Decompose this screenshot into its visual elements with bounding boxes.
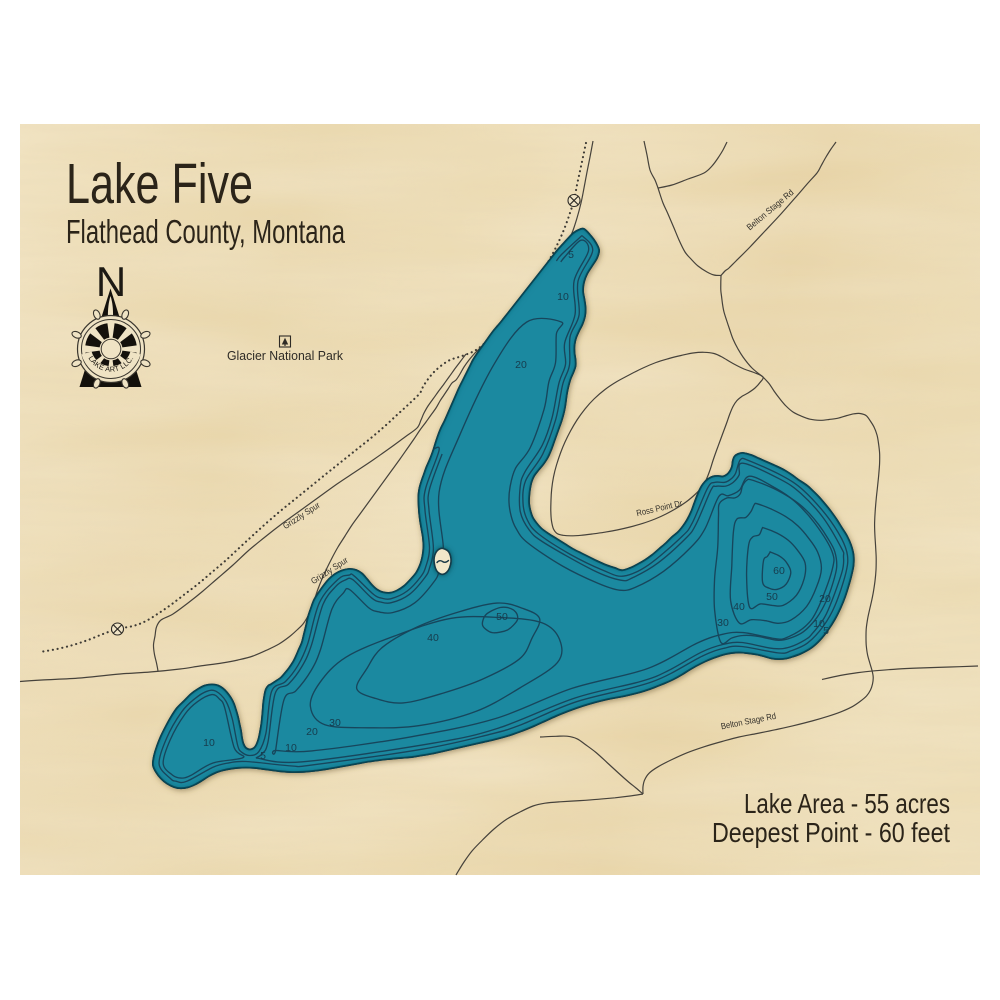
svg-text:Lake Area - 55 acres: Lake Area - 55 acres bbox=[744, 788, 950, 819]
svg-text:30: 30 bbox=[329, 717, 341, 729]
svg-text:5: 5 bbox=[260, 750, 266, 762]
svg-text:20: 20 bbox=[515, 359, 527, 371]
svg-text:40: 40 bbox=[733, 601, 745, 613]
svg-text:5: 5 bbox=[568, 249, 574, 261]
svg-text:Deepest Point - 60 feet: Deepest Point - 60 feet bbox=[712, 817, 950, 848]
svg-text:10: 10 bbox=[203, 737, 215, 749]
svg-text:20: 20 bbox=[819, 593, 831, 605]
svg-text:50: 50 bbox=[496, 611, 508, 623]
svg-text:Flathead County, Montana: Flathead County, Montana bbox=[66, 213, 345, 250]
svg-text:5: 5 bbox=[823, 625, 829, 637]
svg-text:10: 10 bbox=[285, 742, 297, 754]
svg-text:10: 10 bbox=[557, 291, 569, 303]
svg-text:40: 40 bbox=[427, 632, 439, 644]
svg-text:20: 20 bbox=[306, 726, 318, 738]
svg-text:Glacier National Park: Glacier National Park bbox=[227, 348, 343, 363]
svg-text:60: 60 bbox=[773, 565, 785, 577]
svg-text:30: 30 bbox=[717, 617, 729, 629]
svg-text:50: 50 bbox=[766, 591, 778, 603]
svg-text:Lake Five: Lake Five bbox=[66, 152, 253, 216]
